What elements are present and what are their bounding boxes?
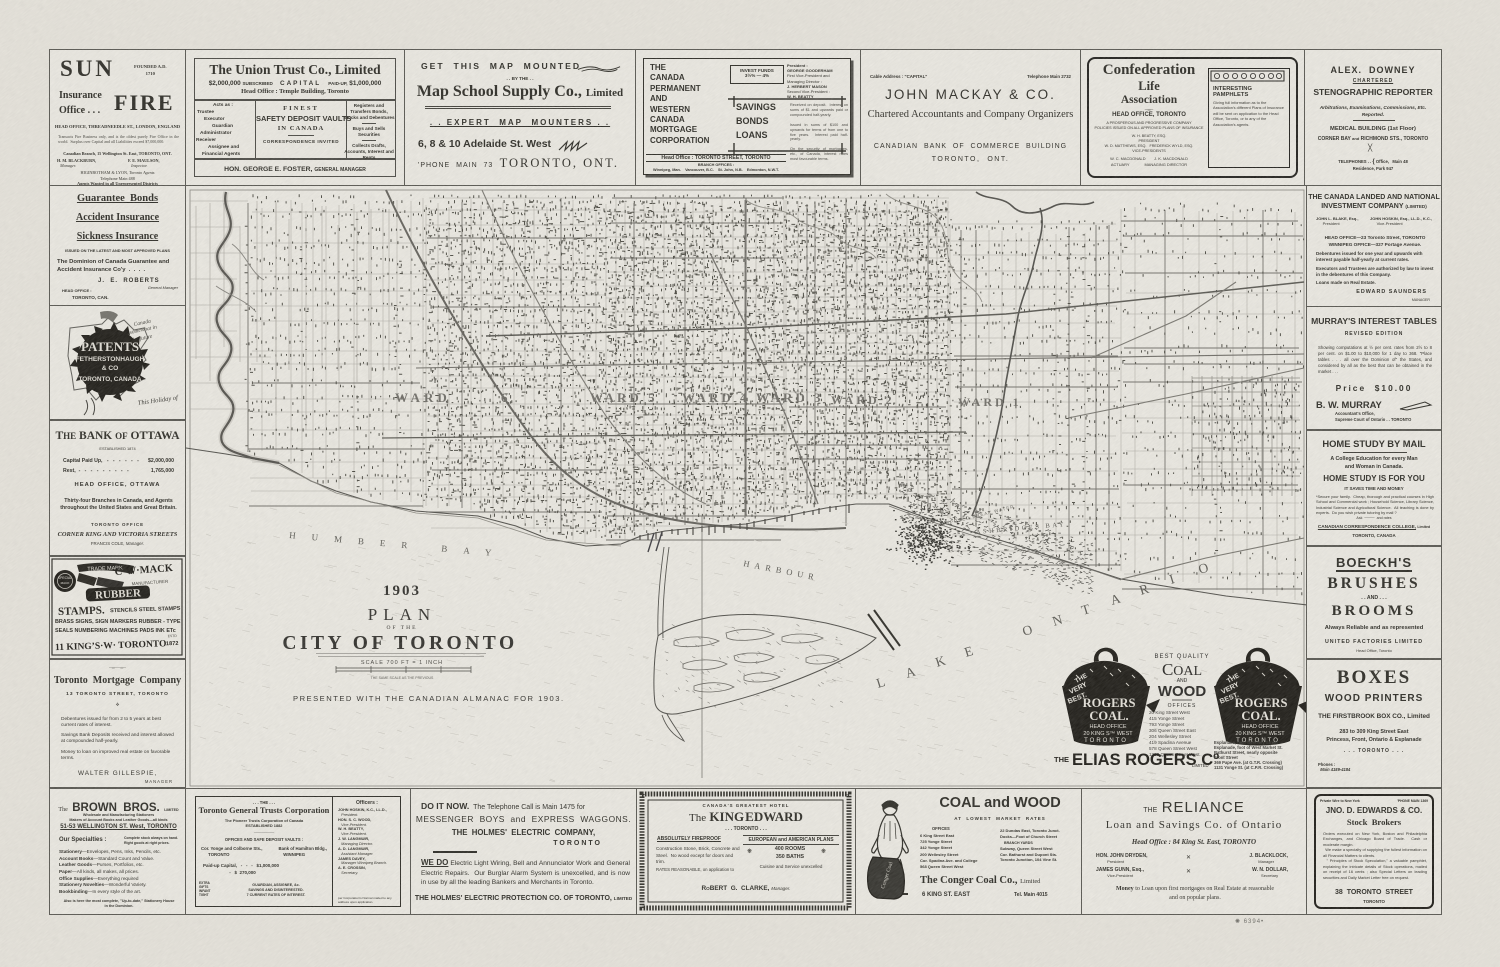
svg-text:20 King Street West: 20 King Street West [1149,710,1190,715]
svg-text:COAL: COAL [1162,660,1202,679]
svg-text:CITY OF TORONTO: CITY OF TORONTO [282,633,517,654]
svg-text:1903: 1903 [383,583,421,599]
svg-text:TORONTO, CANADA: TORONTO, CANADA [79,376,142,383]
svg-text:ESTD: ESTD [168,634,178,638]
svg-text:306 Queen Street East: 306 Queen Street East [1149,728,1196,733]
svg-text:793 Yonge Street: 793 Yonge Street [1149,722,1185,727]
svg-text:TORONTO: TORONTO [1084,738,1128,744]
svg-text:STAMPS.: STAMPS. [58,604,105,618]
svg-text:THE: THE [1054,755,1069,764]
svg-text:PATENTS: PATENTS [81,339,139,354]
svg-text:& CO: & CO [102,365,118,372]
svg-text:A: A [1108,591,1122,608]
svg-text:415 Yonge Street: 415 Yonge Street [1149,716,1185,721]
svg-text:1131 Yonge St. (at C.P.R. Cros: 1131 Yonge St. (at C.P.R. Crossing) [1214,765,1284,770]
svg-text:FETHERSTONHAUGH: FETHERSTONHAUGH [76,356,145,363]
svg-text:SCALE 700 FT = 1 INCH: SCALE 700 FT = 1 INCH [361,660,443,666]
svg-text:PRESENTED WITH THE CANADIAN: PRESENTED WITH THE CANADIAN ALMANAC FOR … [293,694,565,703]
svg-text:This Holiday of: This Holiday of [137,394,179,407]
svg-text:BRASS SIGNS, SIGN MARKERS RUBB: BRASS SIGNS, SIGN MARKERS RUBBER - TYPE [55,619,181,625]
svg-text:WOOD: WOOD [1158,683,1206,700]
svg-text:ROGERS: ROGERS [1235,696,1288,710]
svg-text:204 Wellesley Street: 204 Wellesley Street [1149,734,1192,739]
svg-text:A: A [903,664,917,681]
svg-text:PLAN: PLAN [368,605,436,624]
svg-text:419 Spadina Avenue: 419 Spadina Avenue [1149,740,1192,745]
svg-text:HEAD OFFICE: HEAD OFFICE [1242,724,1279,730]
svg-text:HEAD OFFICE: HEAD OFFICE [1090,724,1127,730]
svg-text:WARD 3: WARD 3 [756,390,823,405]
svg-text:WARD 2: WARD 2 [831,393,895,407]
svg-text:WARD 4: WARD 4 [682,390,749,405]
svg-text:SPECIAL: SPECIAL [58,576,72,580]
svg-text:T: T [1079,601,1092,618]
svg-text:STENCILS STEEL STAMPS: STENCILS STEEL STAMPS [110,606,181,614]
svg-text:RUBBER: RUBBER [95,587,142,601]
svg-text:HARBOUR: HARBOUR [743,558,820,582]
svg-text:K: K [933,653,947,670]
svg-text:COAL.: COAL. [1089,709,1128,723]
svg-text:COAL.: COAL. [1241,709,1280,723]
svg-text:E: E [962,643,974,660]
svg-text:MACK: MACK [61,581,70,585]
svg-text:ROGERS: ROGERS [1083,696,1136,710]
svg-text:1872: 1872 [166,641,179,647]
svg-text:I: I [1167,571,1176,587]
svg-text:THE SAME SCALE AS THE PREVIOUS: THE SAME SCALE AS THE PREVIOUS [371,676,434,680]
svg-text:L: L [874,674,886,691]
svg-text:O: O [1020,622,1034,639]
svg-text:MANUFACTURER: MANUFACTURER [131,579,168,587]
svg-text:WARD: WARD [395,390,451,405]
svg-text:6: 6 [501,390,508,405]
svg-text:20 KING S™ WEST: 20 KING S™ WEST [1083,731,1133,737]
svg-text:N: N [1050,612,1064,629]
svg-text:WARD 1: WARD 1 [958,395,1022,409]
svg-text:LIMITED: LIMITED [1192,763,1209,768]
svg-text:20 KING S™ WEST: 20 KING S™ WEST [1235,731,1285,737]
svg-text:HUMBER BAY: HUMBER BAY [289,530,508,559]
svg-text:OFFICES: OFFICES [1168,703,1197,709]
svg-text:WARD 5: WARD 5 [590,390,657,405]
svg-text:SEALS NUMBERING MACHINES PADS: SEALS NUMBERING MACHINES PADS INK ETc [55,628,176,634]
svg-text:O: O [1196,560,1210,577]
svg-text:11 KING’S·W· TORONTO: 11 KING’S·W· TORONTO [55,639,167,653]
svg-text:OF THE: OF THE [387,625,418,631]
